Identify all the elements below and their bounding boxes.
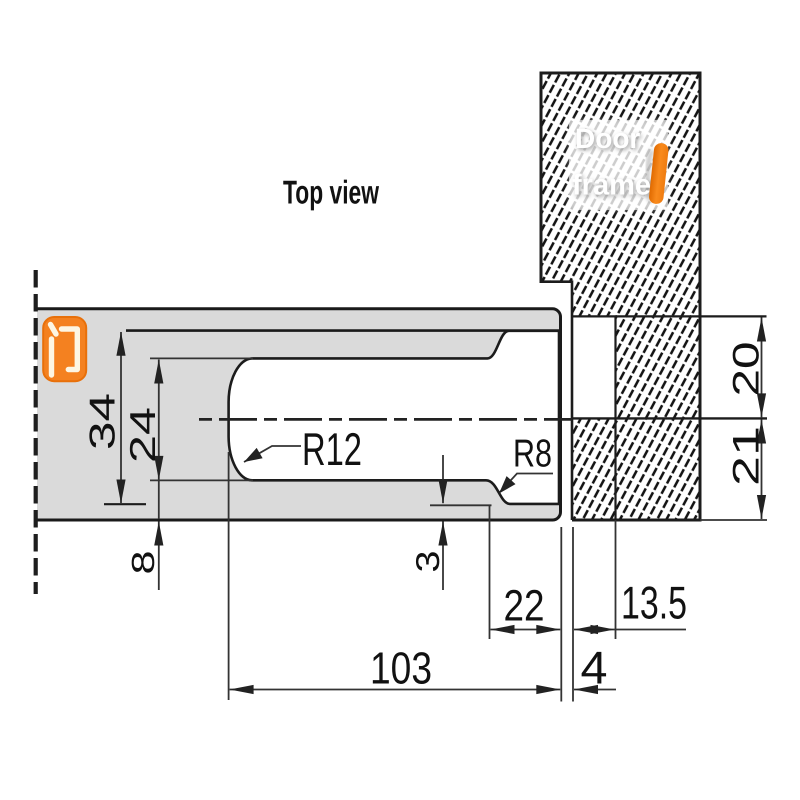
svg-text:3: 3 [409, 551, 446, 573]
svg-text:13.5: 13.5 [621, 577, 687, 629]
svg-text:4: 4 [581, 642, 608, 694]
svg-text:Door: Door [575, 123, 640, 154]
svg-text:R8: R8 [513, 433, 552, 476]
svg-text:20: 20 [726, 342, 767, 397]
svg-text:R12: R12 [302, 423, 362, 475]
svg-text:34: 34 [82, 393, 123, 450]
svg-text:8: 8 [125, 551, 161, 575]
svg-text:24: 24 [122, 407, 163, 463]
svg-text:frame: frame [572, 170, 651, 202]
svg-text:22: 22 [504, 582, 545, 631]
svg-text:103: 103 [370, 643, 432, 694]
svg-text:21: 21 [726, 426, 767, 486]
svg-text:Top view: Top view [283, 174, 379, 211]
